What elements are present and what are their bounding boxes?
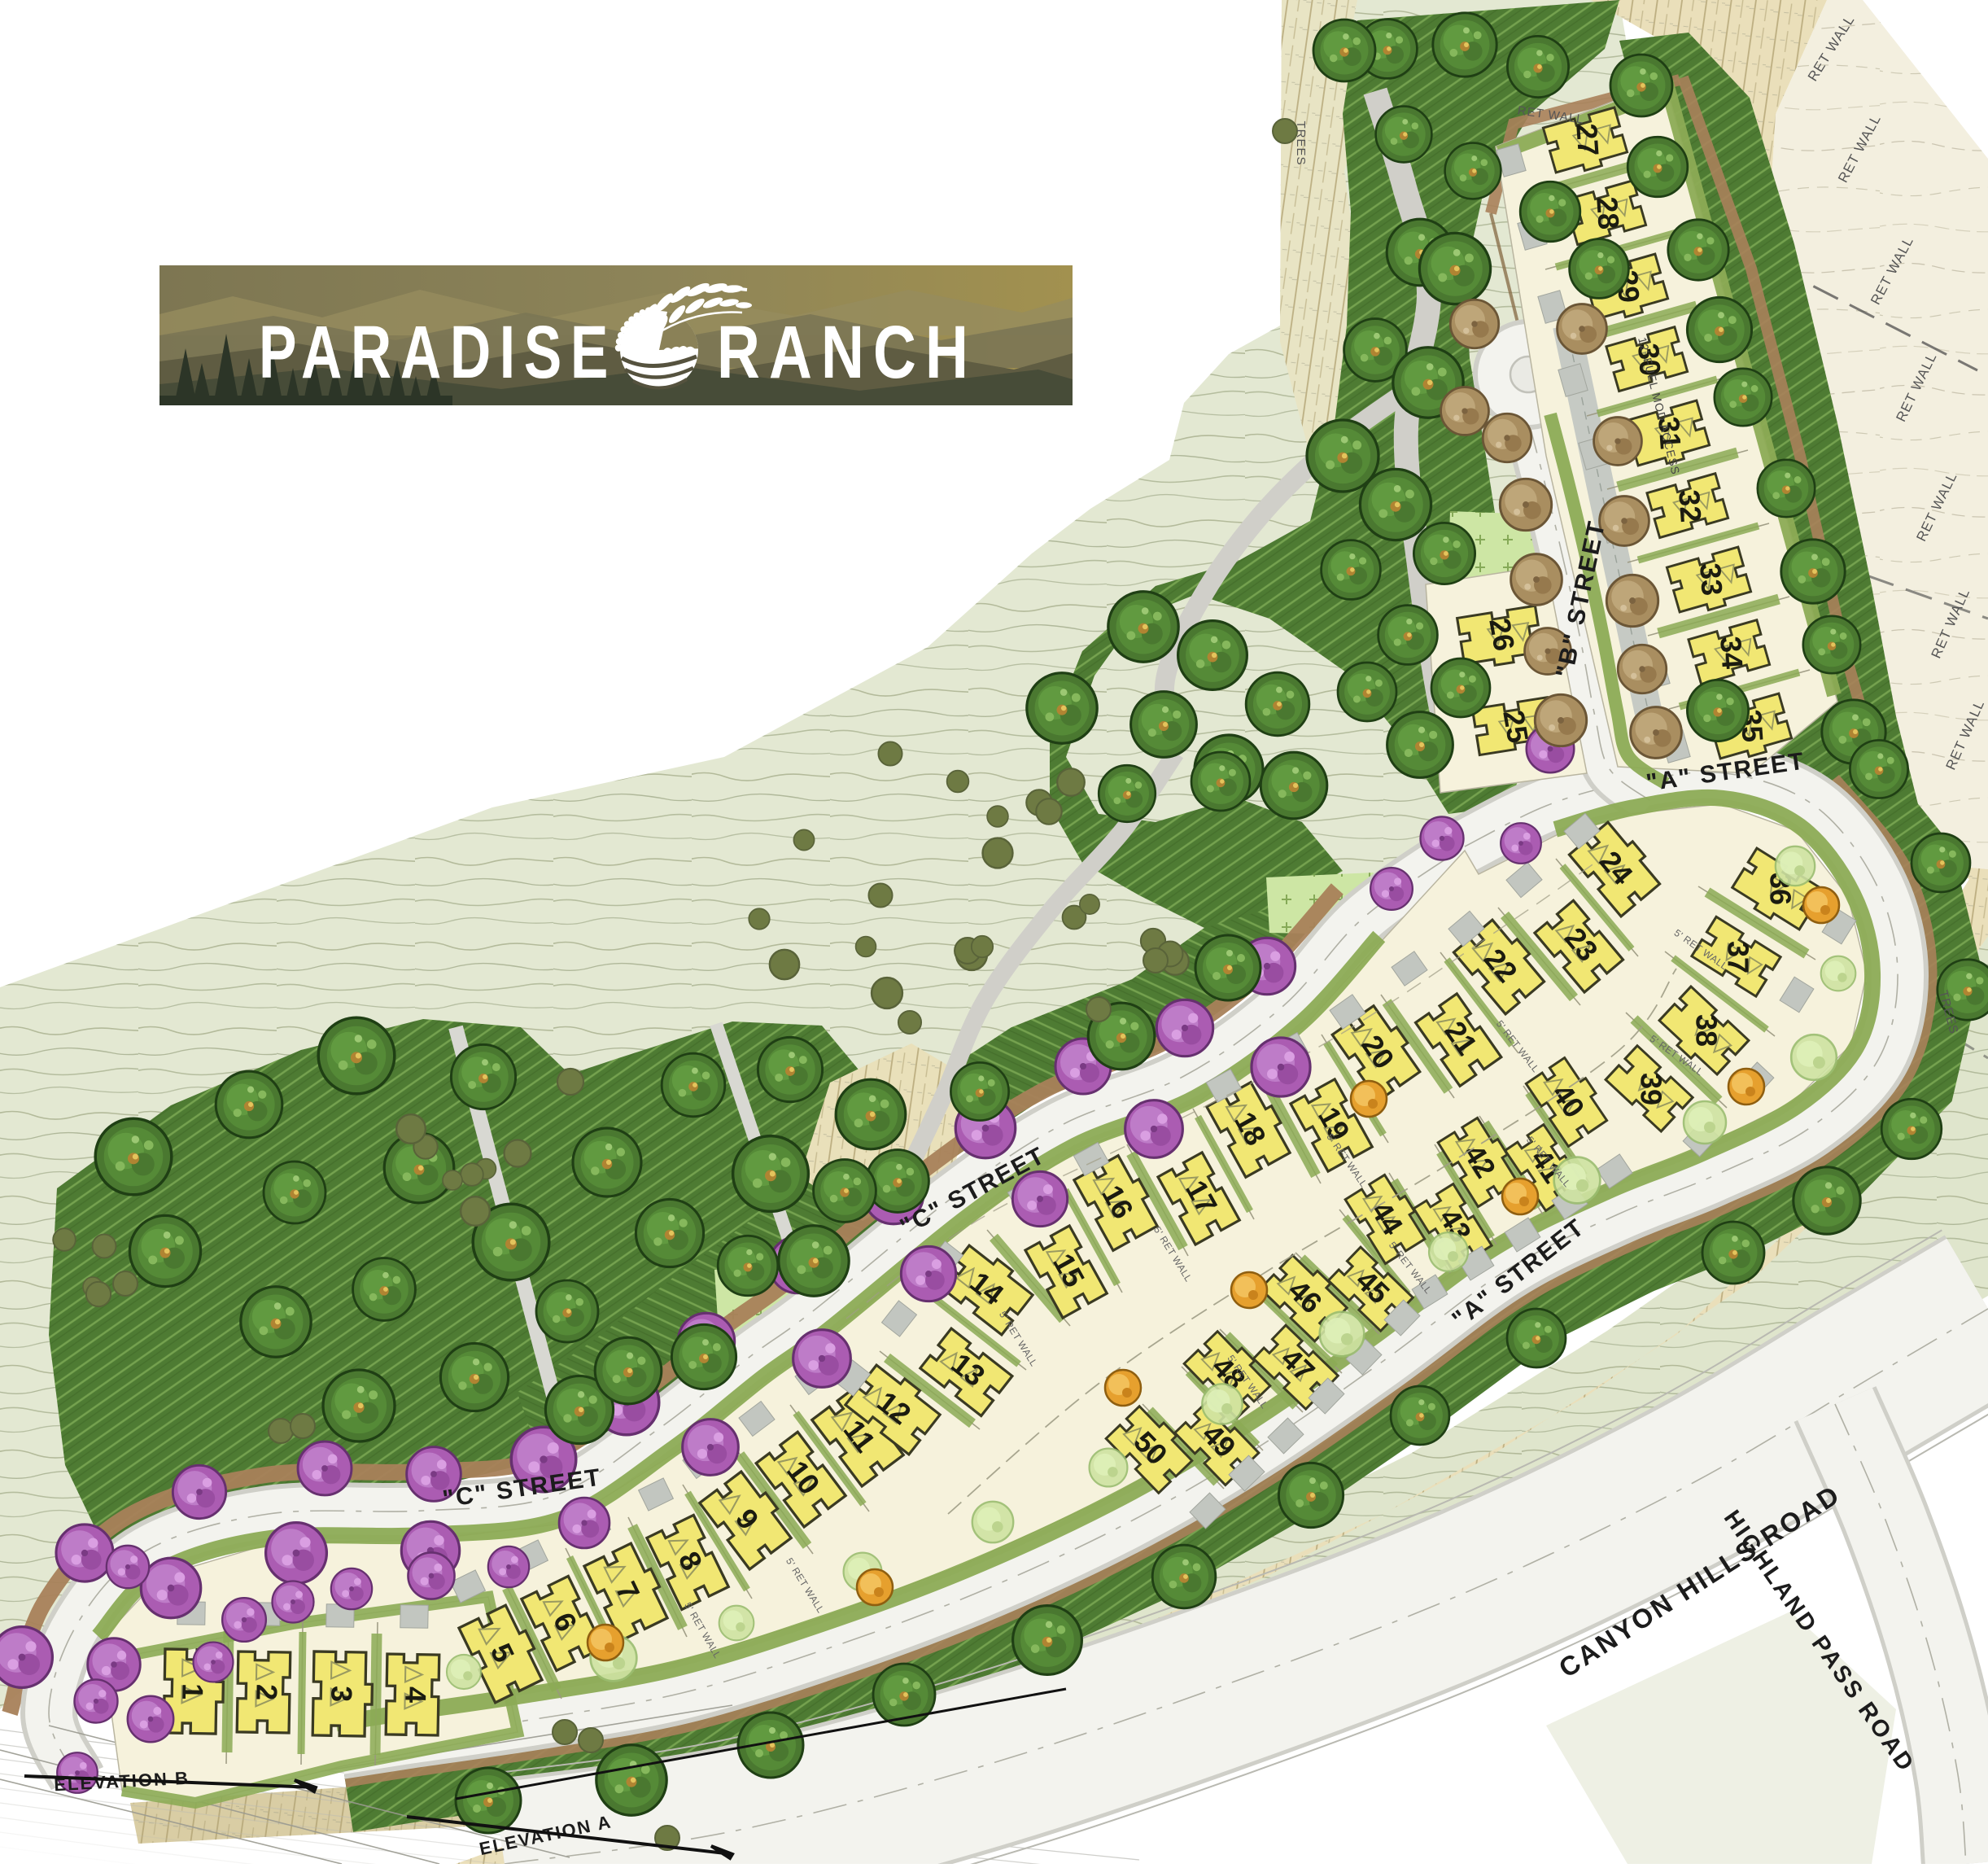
svg-text:28: 28 [1590,195,1626,230]
svg-text:4: 4 [399,1686,432,1704]
svg-text:27: 27 [1570,122,1606,157]
svg-text:34: 34 [1714,635,1750,670]
svg-text:RANCH: RANCH [717,311,977,394]
svg-text:PARADISE: PARADISE [259,311,617,394]
svg-text:3: 3 [325,1686,358,1703]
svg-text:1: 1 [176,1683,209,1700]
svg-text:33: 33 [1693,562,1729,597]
svg-text:38: 38 [1689,1014,1723,1047]
svg-text:TREES: TREES [1294,120,1308,165]
svg-text:39: 39 [1634,1073,1667,1105]
svg-text:2: 2 [250,1684,283,1701]
svg-text:37: 37 [1721,941,1754,973]
svg-text:26: 26 [1483,615,1521,654]
svg-text:32: 32 [1672,488,1708,523]
